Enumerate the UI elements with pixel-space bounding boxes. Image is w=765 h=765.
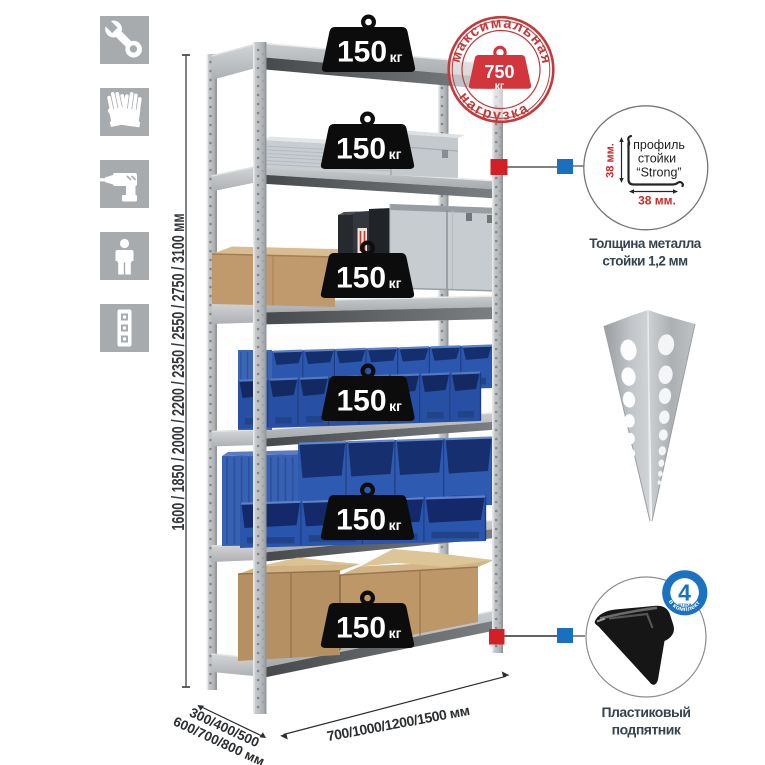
svg-text:кг: кг	[390, 49, 403, 65]
svg-text:кг: кг	[495, 80, 505, 92]
svg-text:38 мм.: 38 мм.	[638, 194, 676, 208]
svg-text:150: 150	[336, 385, 386, 418]
svg-text:профиль: профиль	[633, 138, 685, 152]
svg-text:кг: кг	[389, 517, 402, 533]
svg-text:кг: кг	[389, 275, 402, 291]
svg-text:Пластиковый: Пластиковый	[601, 704, 690, 720]
svg-text:150: 150	[337, 36, 387, 69]
svg-text:стойки 1,2 мм: стойки 1,2 мм	[602, 254, 688, 269]
svg-text:подпятник: подпятник	[612, 722, 682, 738]
svg-text:“Strong”: “Strong”	[636, 166, 681, 180]
svg-text:150: 150	[336, 504, 386, 537]
svg-text:кг: кг	[389, 625, 402, 641]
svg-text:150: 150	[336, 262, 386, 295]
svg-text:1600 / 1850 / 2000 / 2200 / 23: 1600 / 1850 / 2000 / 2200 / 2350 / 2550 …	[169, 213, 189, 530]
svg-text:Толщина металла: Толщина металла	[589, 236, 702, 251]
svg-text:стойки: стойки	[638, 152, 676, 166]
svg-text:кг: кг	[389, 146, 402, 162]
svg-text:150: 150	[336, 133, 386, 166]
svg-text:150: 150	[336, 612, 386, 645]
svg-text:700/1000/1200/1500 мм: 700/1000/1200/1500 мм	[326, 702, 471, 744]
svg-text:38 мм.: 38 мм.	[605, 143, 617, 178]
svg-text:750: 750	[484, 62, 514, 82]
svg-text:кг: кг	[389, 398, 402, 414]
